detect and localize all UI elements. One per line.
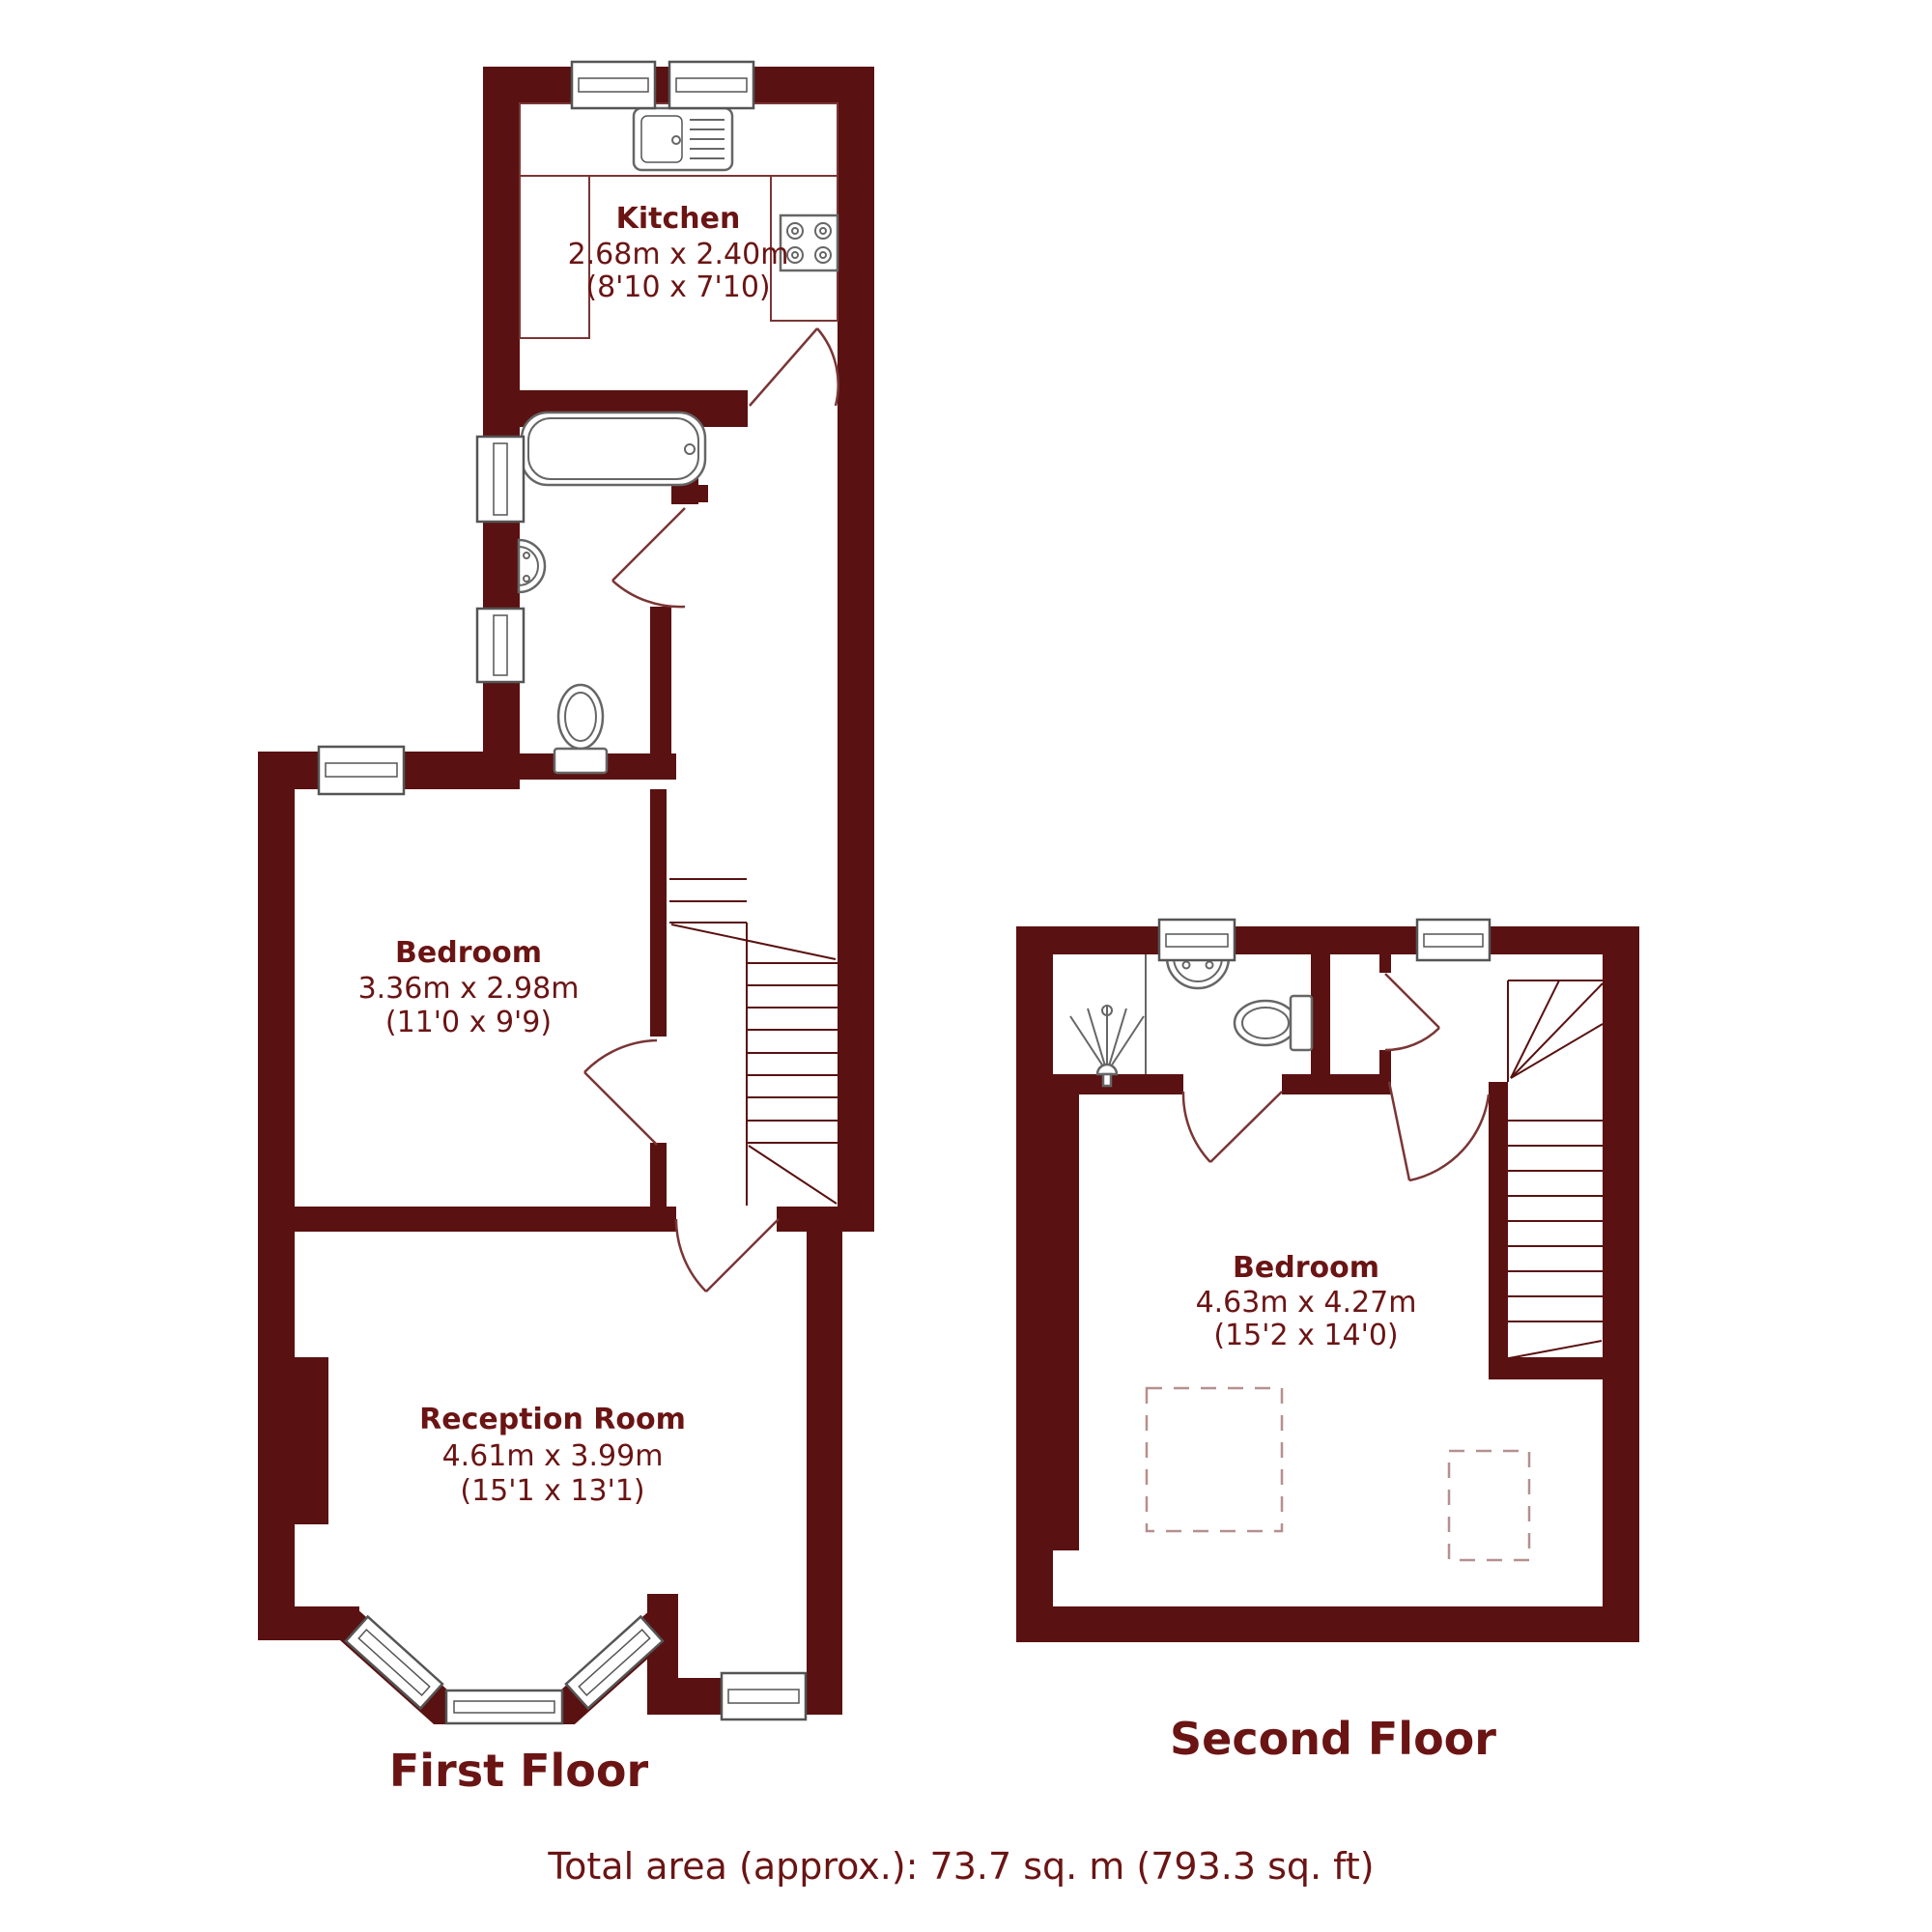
toilet-icon bbox=[554, 685, 607, 773]
bathroom-window bbox=[477, 609, 524, 682]
bathroom-window bbox=[1159, 920, 1235, 960]
room-metric: 4.61m x 3.99m bbox=[442, 1439, 664, 1473]
first-floor-title: First Floor bbox=[389, 1745, 649, 1797]
kitchen-door-arc bbox=[750, 328, 838, 406]
bay-window-left bbox=[346, 1617, 442, 1709]
washbasin-icon bbox=[519, 540, 545, 592]
room-name: Reception Room bbox=[419, 1403, 686, 1436]
reception-window bbox=[722, 1673, 806, 1719]
floorplan: Kitchen 2.68m x 2.40m (8'10 x 7'10) Bedr… bbox=[0, 0, 1932, 1932]
bay-window-front bbox=[446, 1690, 562, 1723]
bedroom-door-arc bbox=[584, 1040, 657, 1145]
shower-icon bbox=[1070, 954, 1146, 1086]
room-imperial: (8'10 x 7'10) bbox=[585, 270, 770, 304]
bathroom-window bbox=[477, 437, 524, 522]
bedroom-label: Bedroom 3.36m x 2.98m (11'0 x 9'9) bbox=[358, 936, 580, 1039]
room-metric: 4.63m x 4.27m bbox=[1196, 1286, 1417, 1320]
room-imperial: (11'0 x 9'9) bbox=[385, 1006, 552, 1039]
washbasin-icon bbox=[1167, 957, 1229, 988]
room-name: Bedroom bbox=[395, 936, 542, 970]
bathroom-second-door-arc bbox=[1183, 1092, 1282, 1162]
entry-door-arc bbox=[676, 1219, 779, 1292]
second-floor-plan: Bedroom 4.63m x 4.27m (15'2 x 14'0) Seco… bbox=[1016, 920, 1639, 1765]
room-name: Kitchen bbox=[616, 202, 741, 236]
bathroom-door-arc bbox=[612, 508, 685, 607]
kitchen-sink-icon bbox=[634, 108, 732, 170]
bedroom-label: Bedroom 4.63m x 4.27m (15'2 x 14'0) bbox=[1196, 1251, 1417, 1352]
reception-room-label: Reception Room 4.61m x 3.99m (15'1 x 13'… bbox=[419, 1403, 686, 1508]
toilet-icon bbox=[1235, 996, 1312, 1050]
total-area-label: Total area (approx.): 73.7 sq. m (793.3 … bbox=[547, 1845, 1374, 1888]
room-name: Bedroom bbox=[1233, 1251, 1379, 1285]
room-metric: 2.68m x 2.40m bbox=[568, 238, 789, 271]
hob-icon bbox=[781, 215, 838, 270]
chimney-breast bbox=[295, 1357, 328, 1524]
bedroom-window bbox=[319, 747, 404, 794]
dashed-area-outline bbox=[1449, 1451, 1529, 1560]
landing-window bbox=[1417, 920, 1490, 960]
staircase bbox=[1508, 980, 1603, 1358]
bedroom-door-arc bbox=[1389, 1082, 1489, 1180]
room-imperial: (15'2 x 14'0) bbox=[1213, 1319, 1398, 1352]
dashed-area-outline bbox=[1147, 1388, 1282, 1531]
room-imperial: (15'1 x 13'1) bbox=[460, 1474, 644, 1508]
second-floor-title: Second Floor bbox=[1170, 1713, 1496, 1765]
first-floor-plan: Kitchen 2.68m x 2.40m (8'10 x 7'10) Bedr… bbox=[258, 62, 874, 1797]
staircase bbox=[669, 879, 838, 1206]
room-metric: 3.36m x 2.98m bbox=[358, 972, 580, 1006]
floorplan-document: Kitchen 2.68m x 2.40m (8'10 x 7'10) Bedr… bbox=[0, 0, 1932, 1932]
kitchen-window bbox=[669, 62, 753, 108]
kitchen-label: Kitchen 2.68m x 2.40m (8'10 x 7'10) bbox=[568, 202, 789, 304]
kitchen-window bbox=[572, 62, 655, 108]
bathtub-icon bbox=[522, 412, 705, 485]
bathroom-door-arc bbox=[1385, 974, 1439, 1050]
